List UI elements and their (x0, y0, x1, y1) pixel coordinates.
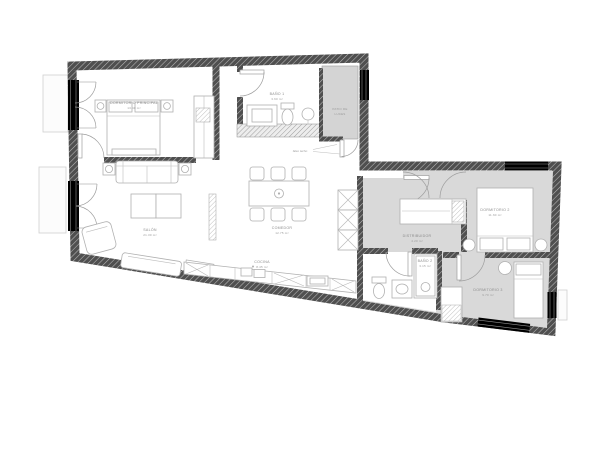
room-area-master: 13.40 m² (127, 106, 140, 110)
window-shaft-right-wall (360, 70, 369, 100)
room-area-bedroom3: 9.70 m² (482, 293, 494, 297)
room-label-bedroom2: DORMITORIO 2 (480, 208, 509, 212)
nightstand (95, 100, 106, 112)
room-label-shaft-2: LUCES (334, 112, 345, 116)
room-area-bath2: 3.15 m² (419, 264, 431, 268)
toilet (281, 103, 294, 125)
room-label-master: DORMITORIO PRINCIPAL (110, 101, 158, 105)
wardrobe-bedroom3 (441, 287, 462, 322)
double-bed (477, 188, 533, 252)
room-area-hall: 4.20 m² (411, 239, 423, 243)
room-label-shaft: PATIO DE (332, 107, 347, 111)
side-table (179, 163, 191, 175)
tv-unit (209, 194, 216, 240)
wardrobe-master (194, 96, 214, 158)
window-sill (43, 75, 68, 132)
room-label-bath2: BAÑO 2 (418, 258, 433, 263)
room-master-bedroom (95, 96, 214, 158)
floor-plan-page: falso techo DORMITORIO PRINCIPAL 13.40 m… (0, 0, 600, 450)
window-bedroom3-right (548, 292, 557, 318)
room-label-living: SALÓN (143, 227, 157, 232)
room-label-kitchen: COCINA (254, 260, 270, 264)
room-area-living: 21.30 m² (143, 233, 156, 237)
window-sill (558, 290, 567, 320)
single-bed (514, 262, 543, 318)
room-hall (400, 199, 466, 224)
nightstand (463, 239, 475, 251)
vanity-sink (392, 280, 412, 298)
room-area-bedroom2: 11.60 m² (488, 213, 501, 217)
floor-plan: falso techo DORMITORIO PRINCIPAL 13.40 m… (0, 0, 600, 450)
side-table (499, 262, 512, 275)
nightstand (161, 100, 173, 112)
bed-bench (112, 149, 156, 155)
room-area-kitchen: 8.45 m² (256, 265, 268, 269)
window-sill (39, 167, 66, 233)
hall-wardrobe (400, 199, 466, 224)
coffee-table (131, 194, 181, 218)
room-label-hall: DISTRIBUIDOR (403, 234, 432, 238)
window-bedroom2-top (505, 162, 548, 171)
sofa (116, 161, 178, 183)
room-area-dining: 12.75 m² (275, 231, 288, 235)
cooktop (307, 276, 328, 286)
tall-kitchen-units (338, 190, 358, 250)
room-label-dining: COMEDOR (272, 226, 293, 230)
room-area-bath1: 3.60 m² (271, 97, 283, 101)
nightstand (535, 239, 547, 251)
light-well (322, 66, 358, 139)
vanity-sink (247, 105, 277, 126)
room-dining (249, 167, 309, 221)
toilet (372, 277, 386, 299)
side-table (103, 163, 115, 175)
room-label-bath1: BAÑO 1 (270, 91, 285, 96)
annotation-text: falso techo (293, 149, 308, 153)
room-label-bedroom3: DORMITORIO 3 (473, 288, 502, 292)
